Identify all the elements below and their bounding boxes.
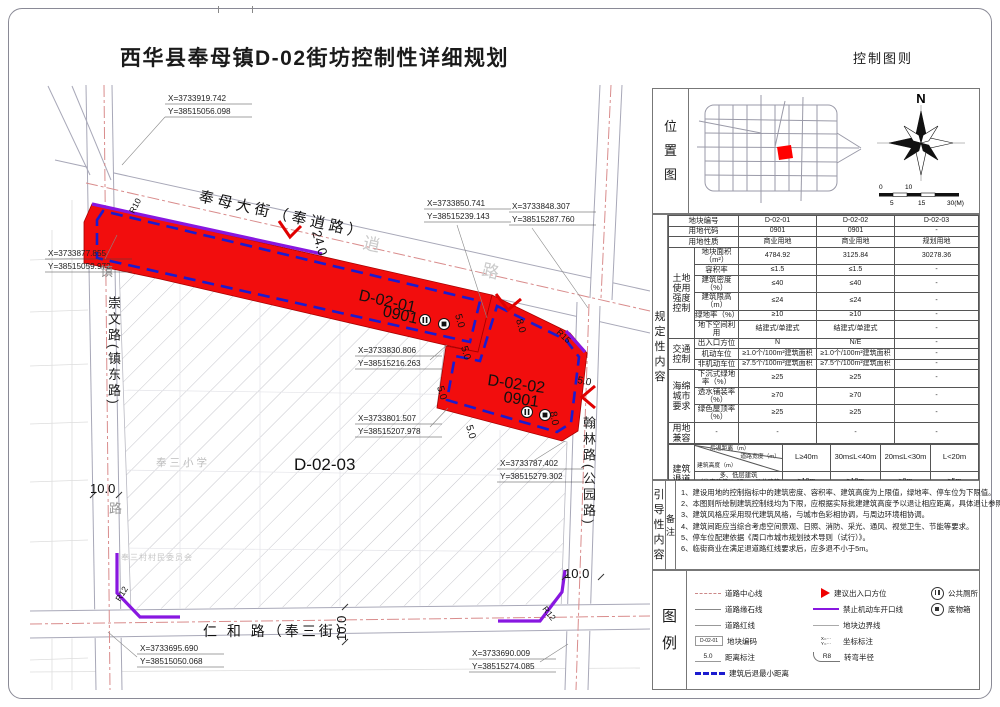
table-cell: 0901 xyxy=(739,226,817,237)
table-cell: 容积率 xyxy=(695,265,739,276)
table-cell: ≤24 xyxy=(817,293,895,311)
svg-text:Y=38515216.263: Y=38515216.263 xyxy=(358,359,421,368)
road-label-chongwen: 崇文路(镇东路) xyxy=(104,296,123,407)
svg-text:30(M): 30(M) xyxy=(947,200,964,207)
table-cell: 规划用地 xyxy=(895,237,979,248)
table-cell: 容积率≤1.5≤1.5- xyxy=(669,265,979,276)
table-cell: - xyxy=(895,226,979,237)
legend-item: 公共厕所 xyxy=(925,585,979,601)
table-cell: D-02-03 xyxy=(895,216,979,227)
road-label-lu: 路 xyxy=(109,501,122,516)
table-cell: ≥1.0个/100m²建筑面积 xyxy=(739,349,817,360)
table-cell: L≥40m xyxy=(783,444,831,471)
bin-icon xyxy=(931,603,944,616)
parcel-code-d-02-03: D-02-03 xyxy=(294,455,355,474)
table-cell: 地下空间利用结建式/单建式结建式/单建式- xyxy=(669,321,979,339)
table-cell: 下沉式绿地率（%） xyxy=(695,370,739,388)
table-cell: - xyxy=(895,349,979,360)
table-cell: 用地性质 xyxy=(669,237,739,248)
guiding-label: 引导性内容 xyxy=(653,481,666,569)
legend-item-label: 废物箱 xyxy=(948,604,971,615)
north-label: N xyxy=(916,91,925,106)
coord-annotation: X=3733690.009Y=38515274.085 xyxy=(469,644,568,672)
location-minimap xyxy=(689,89,865,213)
table-cell: 地块编号D-02-01D-02-02D-02-03 xyxy=(669,216,979,227)
table-cell: 建筑密度（%）≤40≤40- xyxy=(669,275,979,293)
table-cell: 绿色屋顶率（%）≥25≥25- xyxy=(669,405,979,423)
table-cell: 交通控制出入口方位NN/E- xyxy=(669,338,979,349)
prescriptive-label: 规定性内容 xyxy=(653,215,668,479)
road-label-zhen: 镇 xyxy=(100,264,113,279)
table-cell: ≥1.0个/100m²建筑面积 xyxy=(817,349,895,360)
note-line: 1、建设用地的控制指标中的建筑密度、容积率、建筑高度为上限值，绿地率、停车位为下… xyxy=(681,487,1000,498)
legend-item: 建议出入口方位 xyxy=(813,585,925,601)
svg-text:Y=38515279.302: Y=38515279.302 xyxy=(500,472,563,481)
note-line: 2、本图则所绘制建筑控制线均为下限，应根据实际批建建筑高度予以退让相应距离，具体… xyxy=(681,498,1000,509)
table-cell: ≥10 xyxy=(739,310,817,321)
table-cell: 绿地率（%）≥10≥10- xyxy=(669,310,979,321)
legend-item-label: 道路中心线 xyxy=(725,588,763,599)
coord-annotation: X=3733919.742Y=38515056.098 xyxy=(122,94,252,165)
centerline-icon xyxy=(695,593,721,594)
toilet-icon xyxy=(931,587,944,600)
table-cell: 用地代码09010901- xyxy=(669,226,979,237)
school-label: 奉三小学 xyxy=(156,456,210,469)
notes-list: 1、建设用地的控制指标中的建筑密度、容积率、建筑高度为上限值，绿地率、停车位为下… xyxy=(676,481,1000,569)
note-line: 5、停车位配建依据《周口市城市规划技术导则（试行）》。 xyxy=(681,532,1000,543)
control-indicator-table: 地块编号D-02-01D-02-02D-02-03用地代码09010901-用地… xyxy=(668,215,979,444)
svg-text:Y=38515050.068: Y=38515050.068 xyxy=(140,657,203,666)
table-cell: 绿地率（%） xyxy=(695,310,739,321)
table-cell: ≤40 xyxy=(817,275,895,293)
location-box: 位置图 N xyxy=(652,88,980,214)
legend-item: 禁止机动车开口线 xyxy=(813,601,925,617)
table-cell: 海绵城市要求 xyxy=(669,370,695,423)
note-line: 6、临街商业在满足退道路红线要求后，应多退不小于5m。 xyxy=(681,543,1000,554)
dim-10-south: 10.0 xyxy=(334,616,349,641)
legend-item-label: 地块编码 xyxy=(727,636,757,647)
table-cell: 结建式/单建式 xyxy=(739,321,817,339)
legend-item-label: 公共厕所 xyxy=(948,588,978,599)
table-cell: 机动车位≥1.0个/100m²建筑面积≥1.0个/100m²建筑面积- xyxy=(669,349,979,360)
svg-text:X=3733848.307: X=3733848.307 xyxy=(512,202,570,211)
table-cell: 地下空间利用 xyxy=(695,321,739,339)
svg-text:Y=38515274.085: Y=38515274.085 xyxy=(472,662,535,671)
table-cell: 商业用地 xyxy=(817,237,895,248)
compass-rose xyxy=(877,105,965,181)
dim-10-west: 10.0 xyxy=(90,481,115,496)
table-cell: 建筑密度（%） xyxy=(695,275,739,293)
road-label-hanlin: 翰林路(公园路) xyxy=(579,416,598,527)
table-cell: - xyxy=(739,422,817,443)
minimap-site-marker xyxy=(777,145,793,160)
table-cell: ≥10 xyxy=(817,310,895,321)
svg-text:10: 10 xyxy=(905,184,913,191)
table-cell: - xyxy=(895,338,979,349)
legend-item-label: 转弯半径 xyxy=(844,652,874,663)
table-cell: - xyxy=(895,321,979,339)
table-cell: 用地性质商业用地商业用地规划用地 xyxy=(669,237,979,248)
table-cell: 非机动车位≥7.5个/100m²建筑面积≥7.5个/100m²建筑面积- xyxy=(669,359,979,370)
table-cell: 4784.92 xyxy=(739,247,817,265)
legend-box: 图例 道路中心线道路缘石线道路红线D-02-01地块编码5.0距离标注建筑后退最… xyxy=(652,570,980,690)
table-cell: ≥70 xyxy=(739,387,817,405)
table-cell: 透水铺装率（%） xyxy=(695,387,739,405)
legend-item-label: 禁止机动车开口线 xyxy=(843,604,903,615)
table-cell: 3125.84 xyxy=(817,247,895,265)
table-cell: 出入口方位 xyxy=(695,338,739,349)
table-cell: 土地使用强度控制 xyxy=(669,247,695,338)
table-cell: 商业用地 xyxy=(739,237,817,248)
svg-text:0: 0 xyxy=(879,184,883,191)
legend-item: R8转弯半径 xyxy=(813,649,925,665)
legend-item: 道路中心线 xyxy=(695,585,813,601)
table-cell: - xyxy=(695,422,739,443)
table-cell: 机动车位 xyxy=(695,349,739,360)
svg-text:X=3733801.507: X=3733801.507 xyxy=(358,414,416,423)
table-cell: 后退距离（m）道路宽度（m）建筑高度（m） xyxy=(695,444,783,471)
table-cell: D-02-01 xyxy=(739,216,817,227)
table-cell: ≤40 xyxy=(739,275,817,293)
svg-text:X=3733919.742: X=3733919.742 xyxy=(168,94,226,103)
scale-bar: 0 10 5 15 30(M) xyxy=(879,184,964,207)
table-cell: 建筑限高（m） xyxy=(695,293,739,311)
svg-text:Y=38515207.978: Y=38515207.978 xyxy=(358,427,421,436)
legend-item-label: 地块边界线 xyxy=(843,620,881,631)
purple-icon xyxy=(813,608,839,610)
legend-items: 道路中心线道路缘石线道路红线D-02-01地块编码5.0距离标注建筑后退最小距离… xyxy=(687,571,979,689)
table-cell: 交通控制 xyxy=(669,338,695,370)
svg-text:X=3733850.741: X=3733850.741 xyxy=(427,199,485,208)
table-cell: 非机动车位 xyxy=(695,359,739,370)
table-cell: ≥7.5个/100m²建筑面积 xyxy=(817,359,895,370)
legend-item-label: 道路红线 xyxy=(725,620,755,631)
legend-item-label: 坐标标注 xyxy=(843,636,873,647)
table-cell: ≥25 xyxy=(817,370,895,388)
boundary-icon xyxy=(813,625,839,626)
table-cell: - xyxy=(895,310,979,321)
legend-item: 废物箱 xyxy=(925,601,979,617)
legend-item-label: 道路缘石线 xyxy=(725,604,763,615)
committee-label: 奉三村村民委员会 xyxy=(121,552,193,562)
table-cell: 用地兼容---- xyxy=(669,422,979,443)
table-cell: - xyxy=(895,275,979,293)
table-cell: - xyxy=(895,422,979,443)
table-cell: 地块编号 xyxy=(669,216,739,227)
legend-item: 建筑后退最小距离 xyxy=(695,665,813,681)
svg-text:X=3733877.855: X=3733877.855 xyxy=(48,249,106,258)
table-cell: ≥25 xyxy=(739,370,817,388)
note-line: 4、建筑间距应当综合考虑空间景观、日照、消防、采光、通风、视觉卫生、节能等要求。 xyxy=(681,521,1000,532)
table-cell: 结建式/单建式 xyxy=(817,321,895,339)
table-cell: - xyxy=(895,387,979,405)
svg-text:Y=38515287.760: Y=38515287.760 xyxy=(512,215,575,224)
note-line: 3、建筑风格应采用现代建筑风格，与城市色彩相协调，与周边环境相协调。 xyxy=(681,509,1000,520)
table-cell: 建筑限高（m）≤24≤24- xyxy=(669,293,979,311)
table-cell: 透水铺装率（%）≥70≥70- xyxy=(669,387,979,405)
setback-icon xyxy=(695,672,725,675)
table-cell: - xyxy=(895,293,979,311)
dim-icon: 5.0 xyxy=(695,653,721,662)
svg-text:Y=38515056.098: Y=38515056.098 xyxy=(168,107,231,116)
legend-item-label: 建筑后退最小距离 xyxy=(729,668,789,679)
table-cell: D-02-02 xyxy=(817,216,895,227)
legend-item-label: 建议出入口方位 xyxy=(834,588,887,599)
prescriptive-box: 规定性内容 地块编号D-02-01D-02-02D-02-03用地代码09010… xyxy=(652,214,980,480)
legend-item: 道路红线 xyxy=(695,617,813,633)
notes-box: 引导性内容 备注 1、建设用地的控制指标中的建筑密度、容积率、建筑高度为上限值，… xyxy=(652,480,980,570)
table-cell: L<20m xyxy=(931,444,979,471)
redline-icon xyxy=(695,625,721,626)
table-cell: ≥25 xyxy=(739,405,817,423)
road-label-renhe: 仁 和 路（奉三街） xyxy=(203,623,353,639)
arrow-icon xyxy=(821,588,830,598)
table-cell: - xyxy=(817,422,895,443)
legend-label: 图例 xyxy=(653,571,687,689)
svg-text:5: 5 xyxy=(890,200,894,207)
blockcode-icon: D-02-01 xyxy=(695,636,723,646)
remark-label: 备注 xyxy=(666,481,676,569)
table-cell: 土地使用强度控制地块面积（m²）4784.923125.8430278.36 xyxy=(669,247,979,265)
legend-item: D-02-01地块编码 xyxy=(695,633,813,649)
coord-icon: X=··· Y=··· xyxy=(813,636,839,646)
legend-item-label: 距离标注 xyxy=(725,652,755,663)
table-cell: 用地代码 xyxy=(669,226,739,237)
table-cell: N/E xyxy=(817,338,895,349)
table-cell: - xyxy=(895,265,979,276)
table-cell: 20m≤L<30m xyxy=(881,444,931,471)
table-cell: ≤1.5 xyxy=(739,265,817,276)
svg-text:X=3733830.806: X=3733830.806 xyxy=(358,346,416,355)
legend-item: 地块边界线 xyxy=(813,617,925,633)
svg-text:Y=38515239.143: Y=38515239.143 xyxy=(427,212,490,221)
table-cell: 30278.36 xyxy=(895,247,979,265)
table-cell: 地块面积（m²） xyxy=(695,247,739,265)
dim-10-east: 10.0 xyxy=(564,566,589,581)
table-cell: - xyxy=(895,370,979,388)
table-cell: ≥70 xyxy=(817,387,895,405)
svg-text:X=3733787.402: X=3733787.402 xyxy=(500,459,558,468)
svg-text:15: 15 xyxy=(918,200,926,207)
svg-text:X=3733690.009: X=3733690.009 xyxy=(472,649,530,658)
svg-text:X=3733695.690: X=3733695.690 xyxy=(140,644,198,653)
table-cell: N xyxy=(739,338,817,349)
north-arrow-block: N 0 10 xyxy=(865,89,979,213)
radius-icon: R8 xyxy=(813,652,840,662)
legend-item: 道路缘石线 xyxy=(695,601,813,617)
table-cell: ≥7.5个/100m²建筑面积 xyxy=(739,359,817,370)
table-cell: 建筑退道路红线控制距离后退距离（m）道路宽度（m）建筑高度（m）L≥40m30m… xyxy=(669,444,979,471)
table-cell: 30m≤L<40m xyxy=(831,444,881,471)
table-cell: 0901 xyxy=(817,226,895,237)
table-cell: ≥25 xyxy=(817,405,895,423)
table-cell: 用地兼容 xyxy=(669,422,695,443)
table-cell: ≤1.5 xyxy=(817,265,895,276)
curbline-icon xyxy=(695,609,721,610)
table-cell: - xyxy=(895,359,979,370)
legend-item: 5.0距离标注 xyxy=(695,649,813,665)
table-cell: 绿色屋顶率（%） xyxy=(695,405,739,423)
table-cell: 海绵城市要求下沉式绿地率（%）≥25≥25- xyxy=(669,370,979,388)
table-cell: - xyxy=(895,405,979,423)
location-label: 位置图 xyxy=(653,89,689,213)
table-cell: ≤24 xyxy=(739,293,817,311)
legend-item: X=··· Y=···坐标标注 xyxy=(813,633,925,649)
